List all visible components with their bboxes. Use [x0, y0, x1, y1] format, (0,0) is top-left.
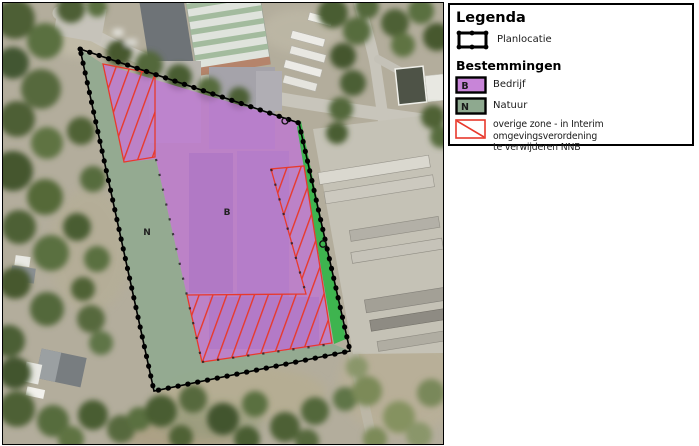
planlocatie-symbol-icon — [455, 29, 491, 52]
bedrijf-label: Bedrijf — [493, 79, 526, 92]
zoning-plan-figure: B N Legenda Planlocatie Bestemmingen B B… — [0, 0, 699, 446]
legend-item-planlocatie: Planlocatie — [455, 29, 688, 52]
overige-label: overige zone - in Interim omgevingsveror… — [493, 119, 688, 154]
legend-item-bedrijf: B Bedrijf — [455, 76, 688, 94]
overige-label-line1: overige zone - in Interim omgevingsveror… — [493, 119, 603, 142]
natuur-swatch-code: N — [461, 102, 469, 113]
map-svg: B N — [3, 3, 443, 444]
legend-item-natuur: N Natuur — [455, 97, 688, 115]
natuur-label: Natuur — [493, 100, 527, 113]
natuur-zone-label: N — [143, 228, 151, 238]
bedrijf-swatch-icon: B — [455, 76, 487, 94]
legend-title: Legenda — [456, 10, 688, 26]
map-canvas: B N — [2, 2, 444, 445]
bedrijf-zone-label: B — [224, 208, 231, 218]
legend-section-title: Bestemmingen — [456, 58, 688, 73]
planlocatie-label: Planlocatie — [497, 34, 552, 47]
overige-label-line2: te verwijderen NNB — [493, 142, 581, 153]
bedrijf-swatch-code: B — [461, 81, 468, 92]
natuur-swatch-icon: N — [455, 97, 487, 115]
legend-item-overige: overige zone - in Interim omgevingsveror… — [455, 119, 688, 154]
overige-swatch-icon — [455, 119, 487, 140]
legend-panel: Legenda Planlocatie Bestemmingen B Bedri… — [448, 3, 694, 146]
